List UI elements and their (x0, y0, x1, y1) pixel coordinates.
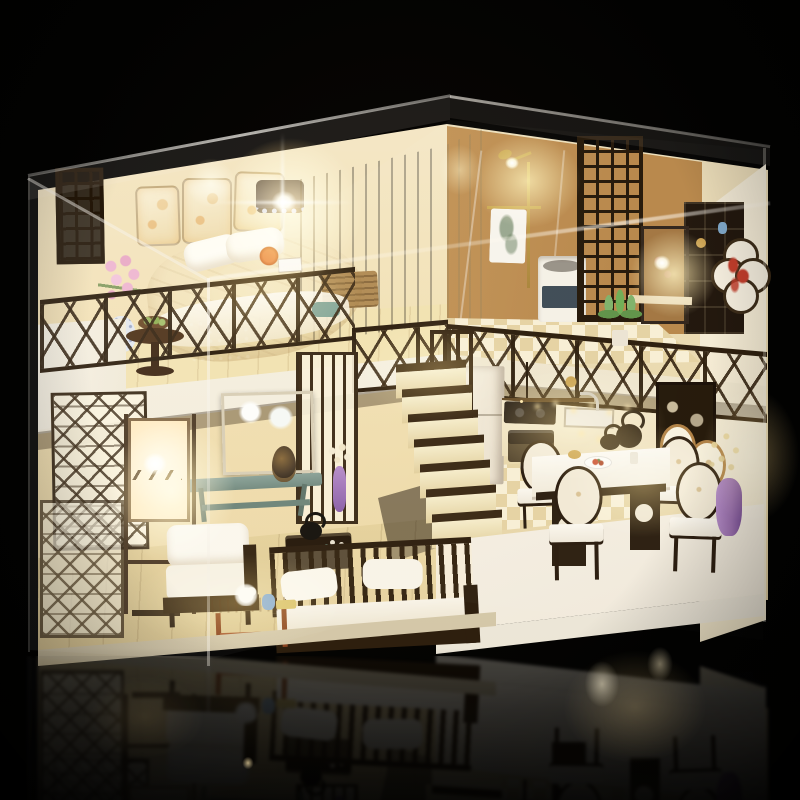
pendant-lamp (256, 180, 304, 213)
wall-art-panel (135, 185, 181, 246)
case-right-vertical (763, 148, 766, 622)
case-left-vertical (28, 178, 30, 652)
surface-fade (0, 648, 800, 800)
product-photo-scene (0, 0, 800, 800)
